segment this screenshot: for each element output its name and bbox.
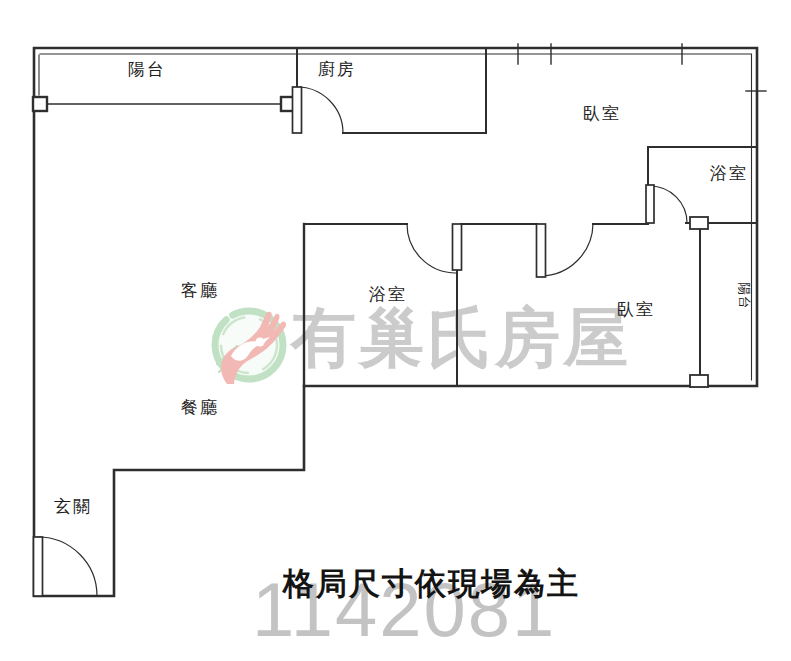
sliding-door-top xyxy=(690,217,708,229)
room-label-living-room: 客廳 xyxy=(181,279,219,302)
room-label-kitchen: 廚房 xyxy=(318,58,356,81)
room-label-bedroom-right: 臥室 xyxy=(617,298,655,321)
entry-door xyxy=(34,537,98,596)
disclaimer-note: 格局尺寸依現場為主 xyxy=(283,563,580,605)
railing-post-left xyxy=(33,97,47,111)
kitchen-door xyxy=(293,87,344,133)
bathroom-top-door xyxy=(646,185,687,223)
room-label-balcony-right: 陽台 xyxy=(735,282,753,310)
floorplan-linework xyxy=(0,0,791,661)
room-label-bathroom-top: 浴室 xyxy=(710,162,748,185)
exterior-wall xyxy=(34,48,757,596)
bathroom-top-walls xyxy=(648,147,756,224)
room-label-bathroom-mid: 浴室 xyxy=(369,283,407,306)
exterior-wall-inner-line xyxy=(40,54,752,380)
room-label-dining-room: 餐廳 xyxy=(181,396,219,419)
sliding-door-bottom xyxy=(690,375,708,387)
floorplan-canvas: 1142081 有巢氏房屋 xyxy=(0,0,791,661)
room-label-bedroom-top: 臥室 xyxy=(583,102,621,125)
bedroom-right-door xyxy=(537,224,594,277)
room-label-balcony-top: 陽台 xyxy=(128,58,166,81)
room-label-entry: 玄關 xyxy=(54,495,92,518)
bathroom-mid-door xyxy=(407,224,462,273)
